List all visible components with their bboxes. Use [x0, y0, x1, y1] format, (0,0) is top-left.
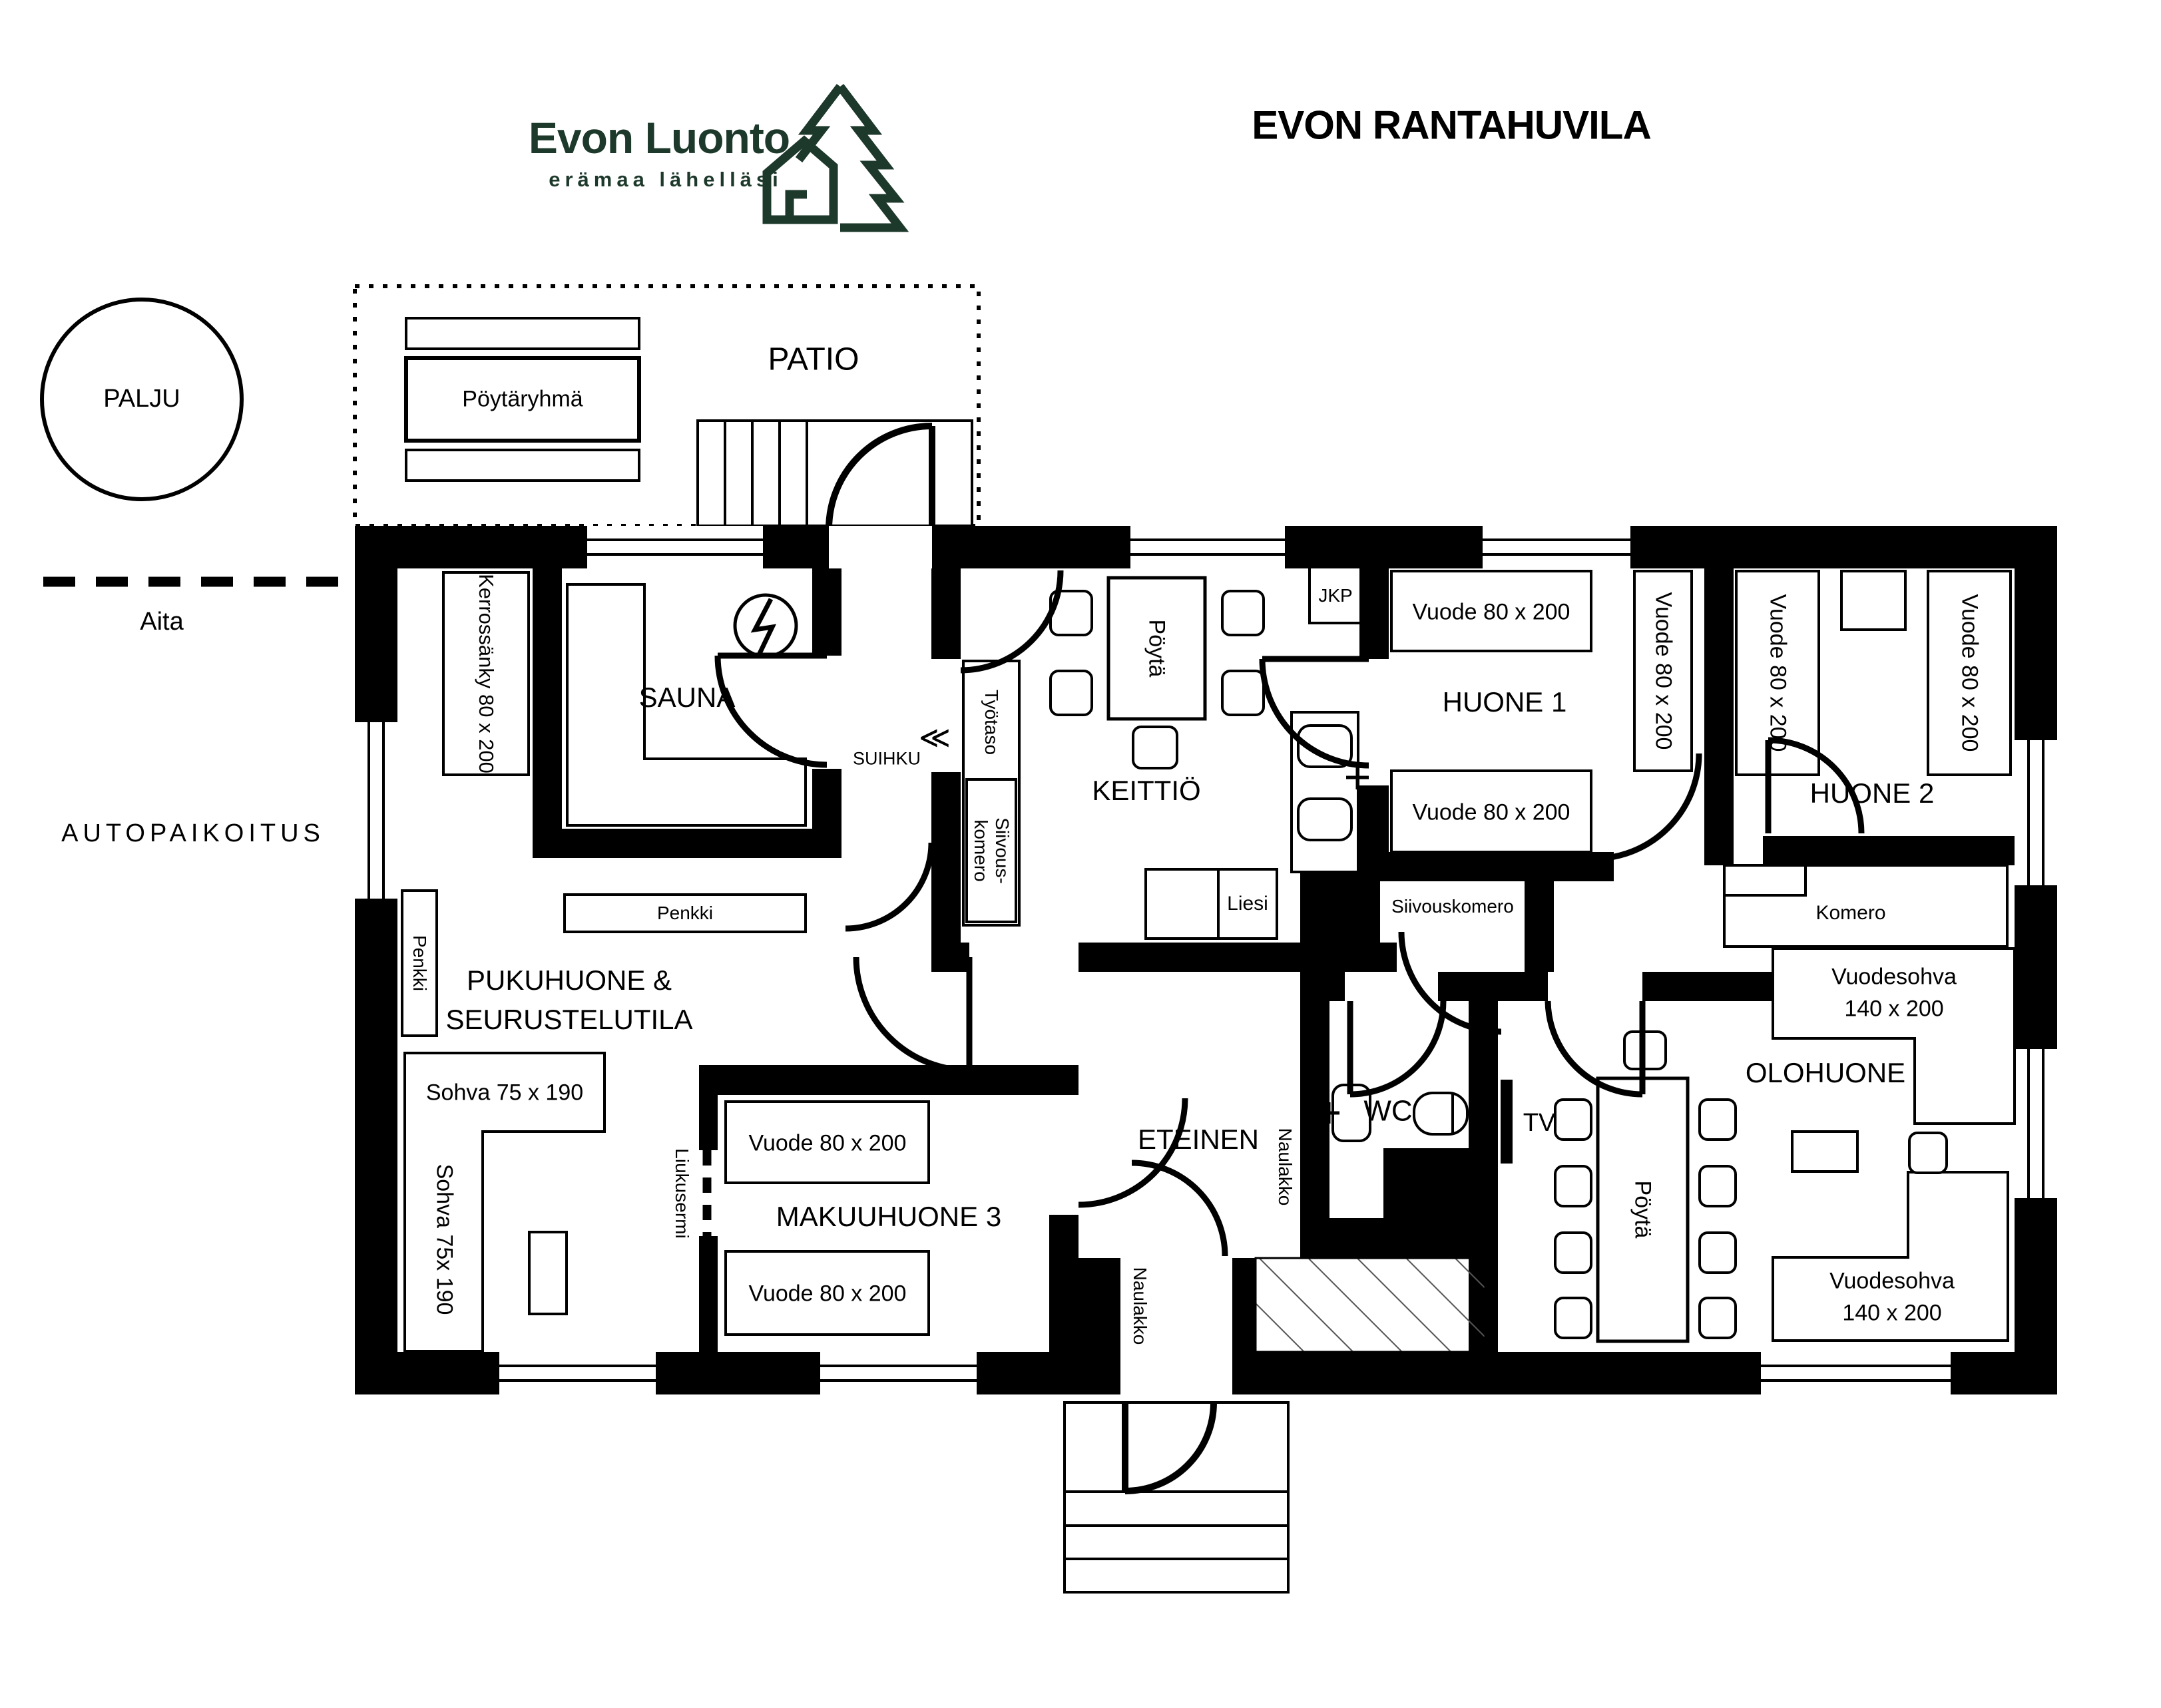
page-title: EVON RANTAHUVILA [1252, 103, 1651, 148]
logo-title: Evon Luonto [529, 113, 790, 164]
bed-label: Vuode 80 x 200 [1764, 594, 1790, 752]
sohva-vertical-label: Sohva 75x 190 [431, 1164, 457, 1315]
huone2-label: HUONE 2 [1810, 777, 1935, 809]
chair [1700, 1166, 1736, 1206]
siivouskomero-vertical-label: Siivous- komero [970, 817, 1013, 884]
coffee-table [1792, 1132, 1857, 1172]
chair [1700, 1100, 1736, 1140]
logo-subtitle: erämaa lähelläsi [549, 168, 783, 192]
patio-door-opening [829, 526, 932, 568]
sofa-bed-label-line1: Vuodesohva [1829, 1268, 1955, 1294]
autopaikoitus-label: AUTOPAIKOITUS [61, 819, 325, 849]
entrance-stairs [1065, 1402, 1288, 1592]
toilet [1414, 1093, 1467, 1134]
wc-label: WC [1363, 1095, 1412, 1129]
poyta-label: Pöytä [1143, 620, 1169, 678]
komero-label: Komero [1815, 902, 1885, 925]
chair [1222, 671, 1264, 715]
shower-icon: ≪ [919, 720, 951, 755]
chair [1555, 1100, 1591, 1140]
sauna-stove-icon [735, 595, 796, 658]
bed-label: Vuode 80 x 200 [1413, 599, 1570, 625]
chair [1133, 727, 1177, 768]
sofa-bed-label-line2: 140 x 200 [1842, 1300, 1941, 1326]
chair [1555, 1166, 1591, 1206]
chair [1555, 1298, 1591, 1338]
sofa-bed-label-line1: Vuodesohva [1831, 964, 1957, 990]
bed-label: Vuode 80 x 200 [1650, 592, 1676, 750]
bed-label: Vuode 80 x 200 [1413, 799, 1570, 825]
chair [1051, 671, 1092, 715]
patio-bench-bottom [406, 450, 639, 481]
floorplan-drawing [0, 0, 2161, 1708]
poytaryhma-label: Pöytäryhmä [462, 386, 583, 412]
bed-label: Vuode 80 x 200 [1956, 594, 1982, 752]
penkki-label: Penkki [657, 903, 713, 924]
chair [1700, 1233, 1736, 1273]
bed-label: Vuode 80 x 200 [749, 1281, 907, 1307]
liukusermi-label: Liukusermi [671, 1148, 692, 1238]
entrance-door-opening [1120, 1352, 1232, 1394]
tv-icon [1501, 1080, 1513, 1164]
side-table-small [529, 1232, 567, 1314]
chair [1222, 591, 1264, 635]
naulakko-label: Naulakko [1274, 1128, 1296, 1206]
patio-label: PATIO [768, 341, 859, 377]
huone1-label: HUONE 1 [1443, 686, 1567, 718]
floorplan-page: Evon Luonto erämaa lähelläsi EVON RANTAH… [0, 0, 2161, 1708]
patio-bench-top [406, 318, 639, 349]
chair [1700, 1298, 1736, 1338]
sink-basin [1298, 799, 1351, 840]
siivouskomero-label: Siivouskomero [1391, 896, 1514, 917]
suihku-label: SUIHKU [853, 748, 921, 769]
pukuhuone-label-line2: SEURUSTELUTILA [445, 1004, 692, 1036]
eteinen-label: ETEINEN [1138, 1124, 1259, 1156]
sauna-label: SAUNA [639, 682, 736, 714]
liesi-label: Liesi [1227, 893, 1268, 916]
aita-label: Aita [140, 608, 183, 637]
bed-label: Vuode 80 x 200 [749, 1130, 907, 1156]
chair [1555, 1233, 1591, 1273]
palju-label: PALJU [103, 385, 180, 414]
keittio-label: KEITTIÖ [1092, 775, 1200, 807]
pukuhuone-label-line1: PUKUHUONE & [467, 964, 672, 996]
nightstand [1841, 571, 1905, 630]
entry-hatched-area [1256, 1258, 1485, 1352]
tv-label: TV [1523, 1109, 1556, 1138]
naulakko-label: Naulakko [1129, 1267, 1150, 1345]
tyotaso-label: Työtaso [981, 690, 1002, 755]
sohva-label: Sohva 75 x 190 [426, 1080, 583, 1106]
chair [1909, 1133, 1947, 1173]
olohuone-label: OLOHUONE [1746, 1057, 1905, 1089]
penkki-vertical-label: Penkki [409, 935, 430, 991]
sofa-bed-label-line2: 140 x 200 [1844, 996, 1943, 1022]
jkp-label: JKP [1318, 585, 1352, 606]
makuuhuone3-label: MAKUUHUONE 3 [776, 1201, 1001, 1233]
poyta-label: Pöytä [1629, 1181, 1655, 1239]
kerrossanky-label: Kerrossänky 80 x 200 [474, 574, 498, 773]
